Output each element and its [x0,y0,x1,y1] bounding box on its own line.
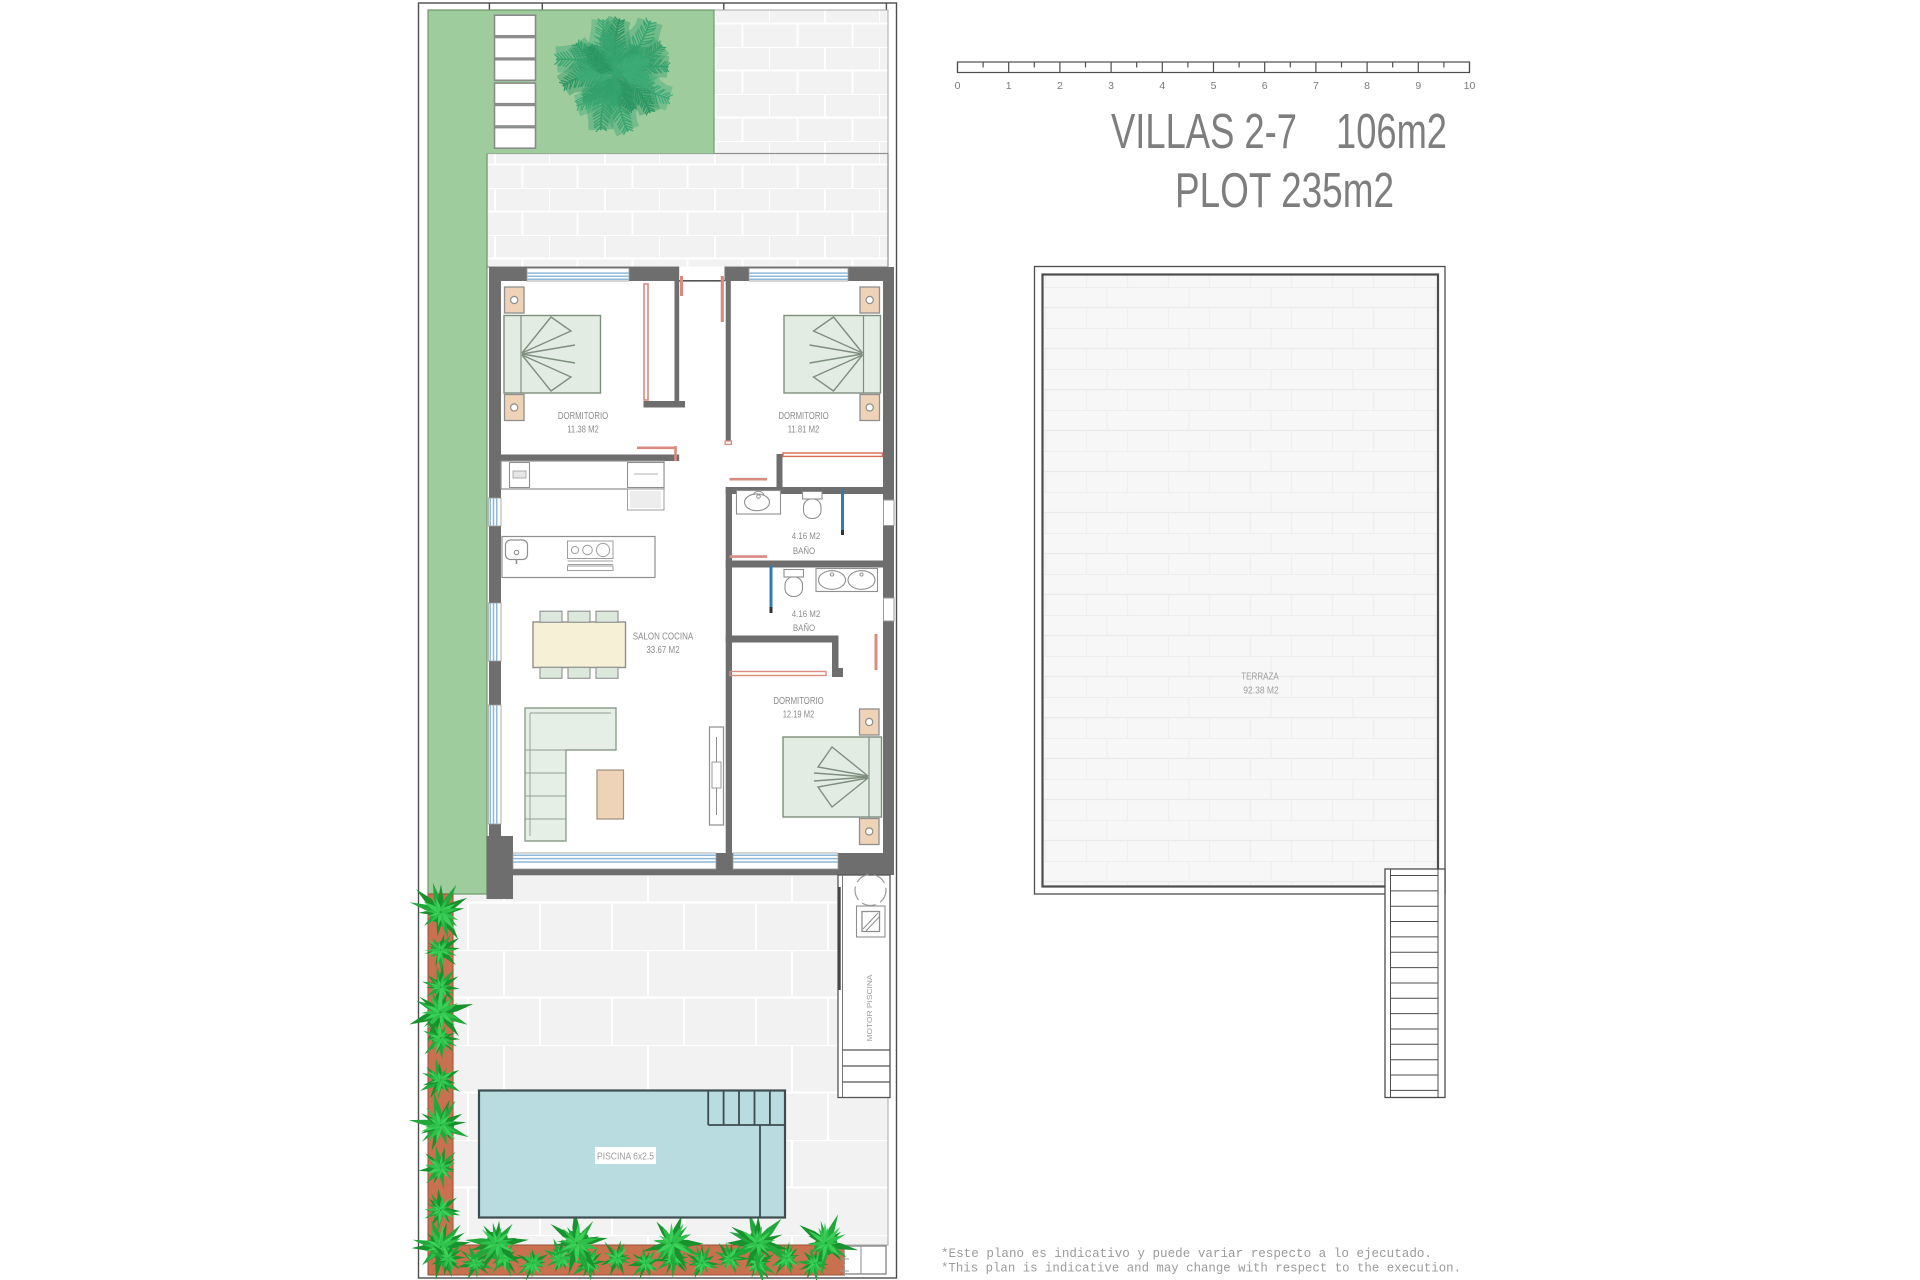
svg-text:DORMITORIO: DORMITORIO [773,696,824,707]
svg-text:MOTOR PISCINA: MOTOR PISCINA [865,975,874,1042]
svg-text:2: 2 [1057,80,1063,92]
svg-text:9: 9 [1415,80,1421,92]
svg-text:DORMITORIO: DORMITORIO [558,411,609,422]
svg-text:92.38 M2: 92.38 M2 [1243,686,1278,697]
svg-text:6: 6 [1262,80,1268,92]
svg-text:106m2: 106m2 [1336,105,1447,159]
svg-text:0: 0 [955,80,961,92]
svg-text:11.38 M2: 11.38 M2 [567,425,599,436]
svg-text:DORMITORIO: DORMITORIO [778,411,829,422]
svg-text:*Este plano es indicativo y pu: *Este plano es indicativo y puede variar… [941,1246,1432,1261]
svg-text:4.16 M2: 4.16 M2 [792,609,821,620]
svg-text:10: 10 [1464,80,1476,92]
svg-text:*This plan is indicative and m: *This plan is indicative and may change … [941,1261,1461,1276]
svg-text:PLOT 235m2: PLOT 235m2 [1175,164,1394,218]
svg-text:4.16 M2: 4.16 M2 [792,531,821,542]
svg-text:SALON COCINA: SALON COCINA [633,632,694,643]
svg-text:5: 5 [1211,80,1217,92]
svg-text:PISCINA 6x2.5: PISCINA 6x2.5 [597,1152,654,1163]
svg-text:12.19 M2: 12.19 M2 [783,710,815,721]
svg-text:8: 8 [1364,80,1370,92]
svg-text:BAÑO: BAÑO [793,546,815,557]
svg-text:7: 7 [1313,80,1319,92]
svg-text:4: 4 [1159,80,1165,92]
svg-text:TERRAZA: TERRAZA [1241,672,1279,683]
svg-text:1: 1 [1006,80,1012,92]
svg-text:11.81 M2: 11.81 M2 [788,425,820,436]
svg-text:VILLAS 2-7: VILLAS 2-7 [1111,105,1297,159]
svg-text:3: 3 [1108,80,1114,92]
svg-text:BAÑO: BAÑO [793,623,815,634]
svg-text:33.67 M2: 33.67 M2 [646,645,679,656]
